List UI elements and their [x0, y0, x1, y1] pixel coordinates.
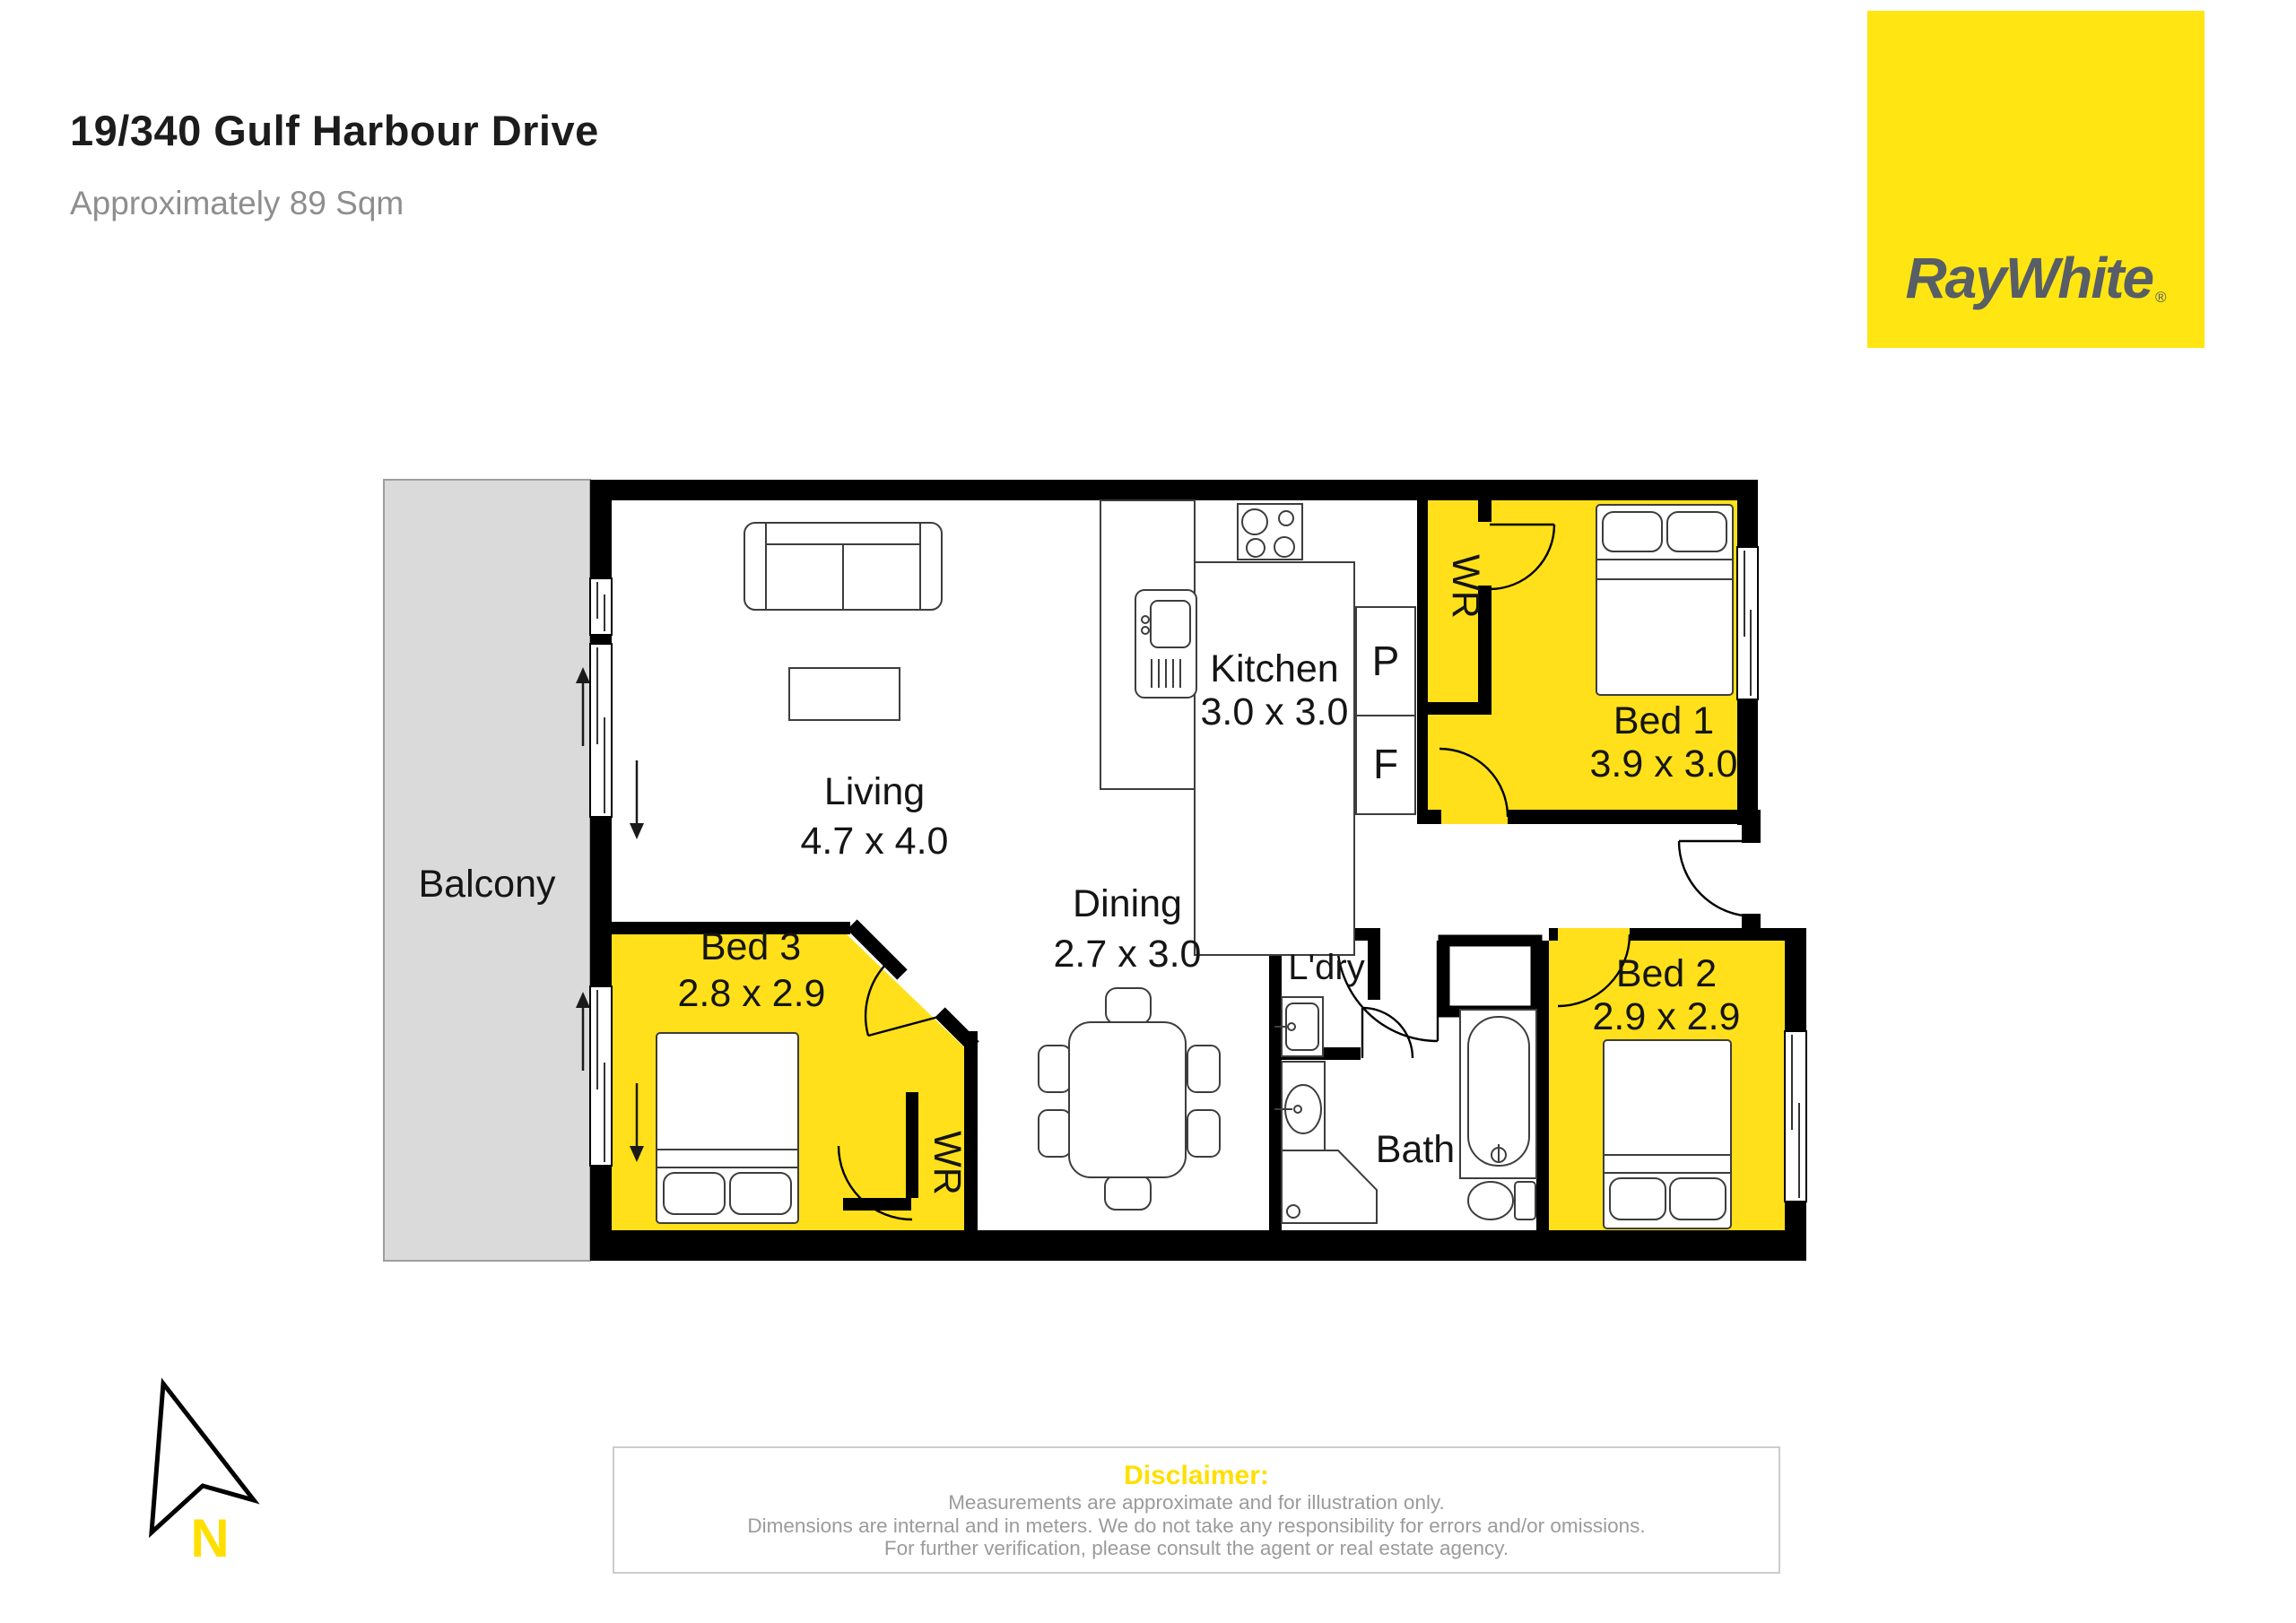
disclaimer-line: Dimensions are internal and in meters. W…	[614, 1515, 1779, 1538]
dining-chair	[1187, 1046, 1220, 1092]
vanity-sink	[1274, 1062, 1325, 1160]
kitchen-label: Kitchen	[1210, 647, 1338, 690]
living-label: Living	[824, 770, 925, 813]
bed2-dims: 2.9 x 2.9	[1593, 995, 1741, 1038]
living-dims: 4.7 x 4.0	[801, 820, 949, 863]
bed1-wardrobe-label: WR	[1444, 554, 1487, 619]
disclaimer-box: Disclaimer: Measurements are approximate…	[613, 1446, 1780, 1574]
dining-chair	[1106, 988, 1151, 1024]
bathtub	[1460, 1010, 1536, 1178]
bed1-dims: 3.9 x 3.0	[1590, 742, 1738, 785]
laundry-label: L'dry	[1288, 948, 1364, 987]
toilet	[1468, 1182, 1535, 1219]
laundry-tub	[1274, 997, 1323, 1056]
bed1-bed	[1596, 505, 1733, 695]
sofa	[744, 523, 942, 610]
dining-label: Dining	[1073, 882, 1182, 925]
bed3-bed	[657, 1033, 798, 1223]
living-window	[590, 578, 612, 635]
fridge-label: F	[1373, 741, 1398, 787]
disclaimer-heading: Disclaimer:	[614, 1461, 1779, 1491]
linen-cupboard	[1444, 941, 1536, 1011]
kitchen-sink-unit	[1135, 590, 1196, 698]
bed3-dims: 2.8 x 2.9	[678, 972, 826, 1015]
dining-dims: 2.7 x 3.0	[1054, 933, 1202, 976]
dining-chair	[1039, 1046, 1071, 1092]
bed2-window	[1785, 1031, 1806, 1202]
north-label: N	[190, 1508, 229, 1568]
disclaimer-line: For further verification, please consult…	[614, 1537, 1779, 1560]
dining-table-set	[1039, 988, 1220, 1210]
bed3-label: Bed 3	[700, 925, 801, 968]
bed2-label: Bed 2	[1616, 952, 1717, 995]
page: { "header": { "title": "19/340 Gulf Harb…	[0, 0, 2296, 1623]
coffee-table	[789, 668, 900, 720]
bed1-window	[1737, 547, 1758, 699]
bed2-bed	[1604, 1040, 1731, 1228]
entry-door	[1679, 841, 1754, 916]
shower	[1282, 1150, 1377, 1223]
bed1-label: Bed 1	[1613, 699, 1714, 742]
dining-table	[1069, 1022, 1186, 1177]
balcony-label: Balcony	[419, 863, 556, 906]
north-compass: N	[152, 1384, 254, 1568]
living-slider-window	[590, 644, 612, 817]
slide-arrow-down	[630, 760, 644, 839]
dining-chair	[1039, 1110, 1071, 1157]
kitchen-dims: 3.0 x 3.0	[1201, 690, 1349, 733]
floorplan-svg: Balcony Living 4.7 x 4.0 Kitchen 3.0 x 3…	[0, 0, 2296, 1623]
pantry-label: P	[1372, 638, 1400, 684]
bed3-slider-window	[590, 986, 612, 1166]
dining-chair	[1105, 1176, 1151, 1210]
disclaimer-line: Measurements are approximate and for ill…	[614, 1491, 1779, 1515]
bath-label: Bath	[1376, 1128, 1455, 1171]
dining-chair	[1187, 1110, 1220, 1157]
bed3-wardrobe-label: WR	[926, 1131, 969, 1195]
stove	[1238, 504, 1302, 560]
